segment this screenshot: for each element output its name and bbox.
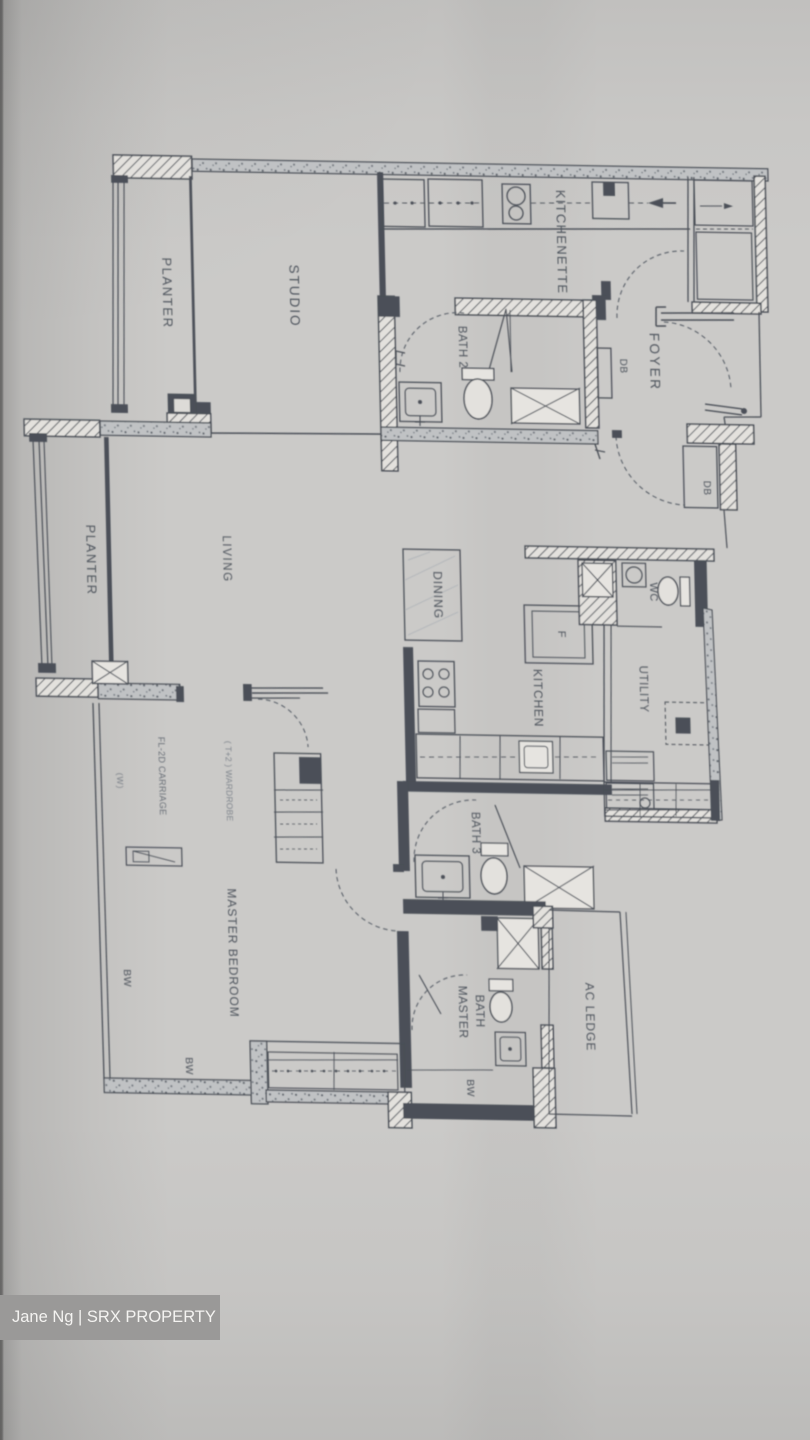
svg-text:MASTER BEDROOM: MASTER BEDROOM <box>225 888 242 1018</box>
svg-text:MASTER: MASTER <box>455 985 470 1038</box>
svg-text:DB: DB <box>701 480 712 495</box>
svg-text:UTILITY: UTILITY <box>637 665 650 712</box>
svg-text:AC LEDGE: AC LEDGE <box>582 983 598 1052</box>
svg-text:BW: BW <box>464 1079 476 1097</box>
svg-text:PLANTER: PLANTER <box>83 524 100 595</box>
svg-text:DINING: DINING <box>430 571 445 619</box>
svg-text:( T+2 ) WARDROBE: ( T+2 ) WARDROBE <box>223 741 235 822</box>
svg-text:STUDIO: STUDIO <box>286 264 302 327</box>
svg-text:WC: WC <box>647 582 659 602</box>
svg-text:F: F <box>555 631 567 638</box>
svg-text:BATH 2: BATH 2 <box>456 326 469 369</box>
svg-text:FOYER: FOYER <box>646 333 662 392</box>
svg-text:DB: DB <box>617 358 628 373</box>
svg-text:BATH: BATH <box>473 994 488 1027</box>
svg-text:KITCHENETTE: KITCHENETTE <box>553 190 570 295</box>
svg-text:BATH 3: BATH 3 <box>469 812 482 855</box>
svg-text:KITCHEN: KITCHEN <box>530 669 545 728</box>
svg-text:LIVING: LIVING <box>220 535 233 583</box>
svg-text:(W): (W) <box>115 773 125 790</box>
svg-text:BW: BW <box>183 1057 195 1075</box>
svg-text:PLANTER: PLANTER <box>159 257 176 328</box>
svg-text:FL-2D CARRIAGE: FL-2D CARRIAGE <box>156 737 168 816</box>
svg-text:BW: BW <box>121 969 133 987</box>
